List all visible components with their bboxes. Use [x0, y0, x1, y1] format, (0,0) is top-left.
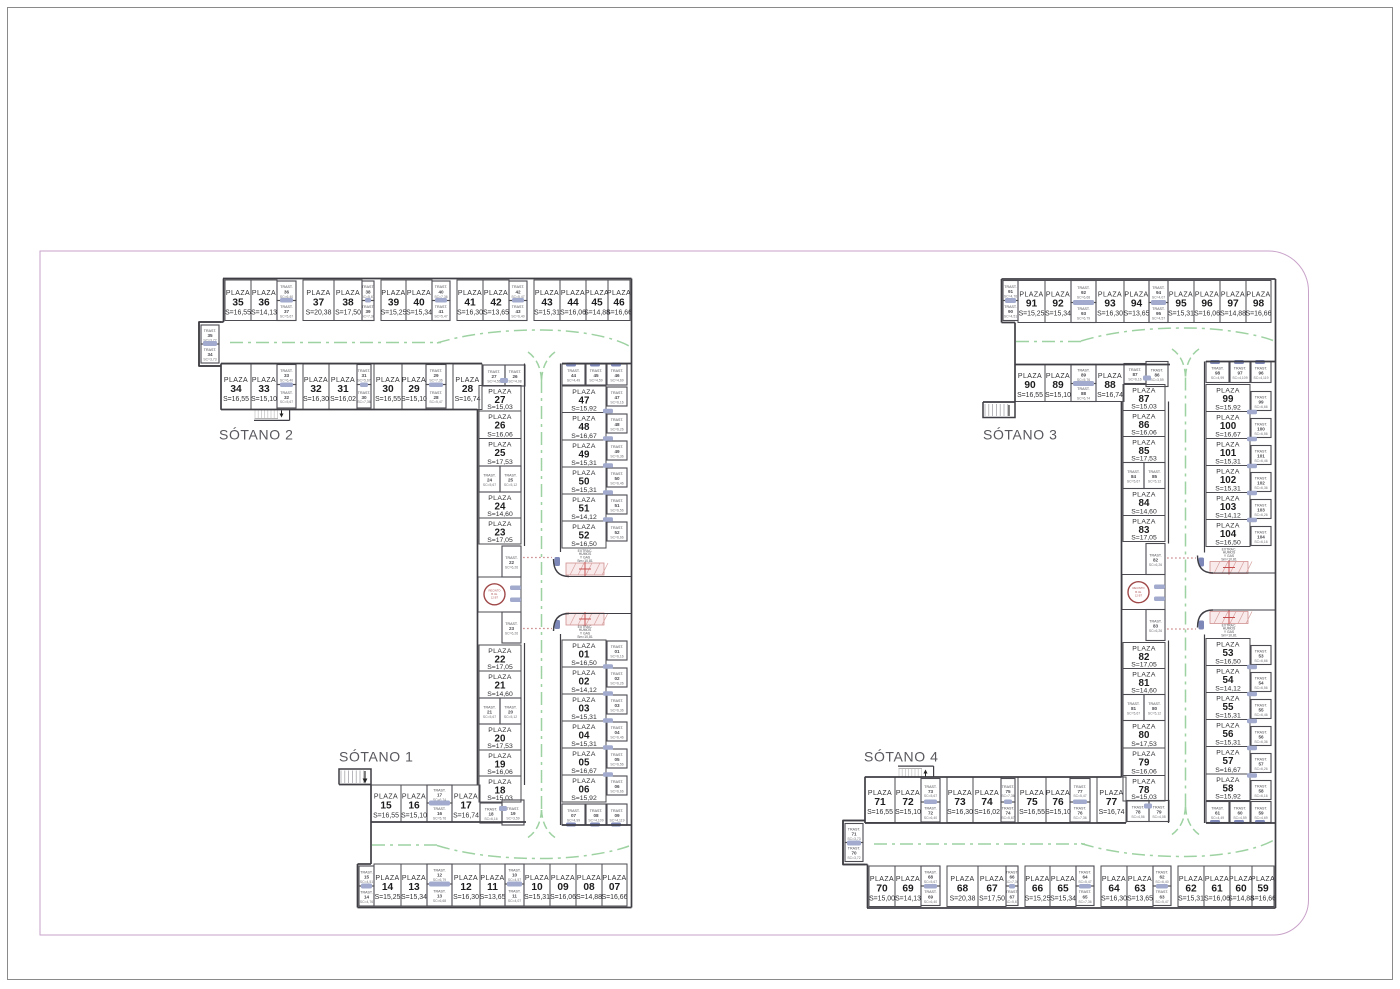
svg-text:S=16,50: S=16,50 [571, 541, 597, 548]
svg-text:PLAZA: PLAZA [1102, 876, 1126, 883]
svg-text:PLAZA: PLAZA [577, 875, 601, 882]
svg-text:65: 65 [1082, 894, 1088, 899]
svg-text:SC=5,67: SC=5,67 [924, 880, 937, 884]
svg-text:39: 39 [365, 309, 371, 314]
svg-text:49: 49 [579, 449, 590, 460]
svg-text:94: 94 [1156, 290, 1162, 295]
svg-text:75: 75 [1005, 789, 1011, 794]
svg-text:70: 70 [876, 884, 888, 895]
svg-text:65: 65 [1057, 884, 1069, 895]
svg-text:09: 09 [614, 813, 620, 818]
svg-text:11: 11 [487, 882, 498, 893]
svg-text:S=15,31: S=15,31 [1215, 459, 1241, 466]
svg-text:98: 98 [1253, 299, 1265, 310]
svg-text:PLAZA: PLAZA [226, 290, 250, 297]
svg-text:17: 17 [437, 793, 443, 798]
svg-text:PLAZA: PLAZA [1128, 876, 1152, 883]
svg-text:26: 26 [512, 374, 518, 379]
svg-text:SC=6,16: SC=6,16 [610, 655, 623, 659]
svg-text:96: 96 [1258, 371, 1264, 376]
svg-text:12: 12 [437, 873, 443, 878]
svg-text:76: 76 [1052, 797, 1064, 808]
svg-text:80: 80 [1139, 730, 1150, 741]
svg-text:S=16,55: S=16,55 [375, 396, 401, 403]
svg-text:28: 28 [433, 395, 439, 400]
svg-text:S=15,31: S=15,31 [1178, 896, 1204, 903]
svg-text:79: 79 [1156, 810, 1162, 815]
svg-text:S=15,00: S=15,00 [869, 896, 895, 903]
svg-text:81: 81 [1131, 706, 1137, 711]
svg-text:77: 77 [1106, 797, 1118, 808]
svg-text:PLAZA: PLAZA [252, 290, 276, 297]
svg-text:S=17,50: S=17,50 [335, 309, 361, 316]
svg-text:69: 69 [902, 884, 914, 895]
svg-text:06: 06 [579, 784, 590, 795]
svg-text:SC=4,56: SC=4,56 [487, 380, 500, 384]
svg-text:24: 24 [487, 478, 493, 483]
svg-text:12 BT: 12 BT [1135, 593, 1143, 597]
svg-text:39: 39 [388, 297, 400, 308]
svg-text:63: 63 [1134, 884, 1146, 895]
svg-text:S=17,05: S=17,05 [1131, 535, 1157, 542]
svg-text:S=14,13: S=14,13 [895, 896, 921, 903]
svg-text:05: 05 [614, 757, 620, 762]
svg-text:S=16,06: S=16,06 [1194, 311, 1220, 318]
svg-text:62: 62 [1185, 884, 1197, 895]
svg-text:10: 10 [512, 873, 518, 878]
svg-text:30: 30 [361, 395, 367, 400]
svg-text:61: 61 [1211, 884, 1223, 895]
svg-text:28: 28 [462, 384, 474, 395]
svg-text:PLAZA: PLAZA [252, 377, 276, 384]
svg-text:SC=5,67: SC=5,67 [483, 483, 496, 487]
svg-text:17: 17 [460, 801, 472, 812]
svg-text:S=17,53: S=17,53 [1131, 456, 1157, 463]
svg-text:16: 16 [408, 801, 420, 812]
svg-text:PLAZA: PLAZA [402, 794, 426, 801]
svg-text:SC=4,76: SC=4,76 [360, 900, 373, 904]
svg-text:S=16,55: S=16,55 [1017, 392, 1043, 399]
svg-text:07: 07 [609, 882, 621, 893]
svg-text:38: 38 [365, 289, 371, 294]
svg-text:34: 34 [207, 352, 213, 357]
svg-text:32: 32 [310, 384, 322, 395]
svg-text:SC=6,36: SC=6,36 [1254, 740, 1267, 744]
svg-text:PLAZA: PLAZA [535, 290, 559, 297]
svg-text:88: 88 [1081, 391, 1087, 396]
svg-text:SC=6,36: SC=6,36 [1254, 486, 1267, 490]
svg-text:SC=6,56: SC=6,56 [1254, 686, 1267, 690]
svg-text:23: 23 [509, 626, 515, 631]
svg-text:PLAZA: PLAZA [1251, 876, 1275, 883]
svg-text:33: 33 [258, 384, 270, 395]
svg-text:SC=4,51: SC=4,51 [1004, 315, 1017, 319]
svg-text:51: 51 [614, 503, 620, 508]
svg-text:PLAZA: PLAZA [1019, 292, 1043, 299]
svg-text:SC=6,79: SC=6,79 [433, 878, 446, 882]
svg-text:SC=4,119: SC=4,119 [1254, 376, 1269, 380]
svg-text:SC=4,07: SC=4,07 [1152, 296, 1165, 300]
svg-text:PLAZA: PLAZA [336, 290, 360, 297]
svg-text:Sm=10,81: Sm=10,81 [1221, 558, 1237, 562]
svg-text:95: 95 [1156, 311, 1162, 316]
svg-text:SC=6,36: SC=6,36 [610, 709, 623, 713]
svg-text:S=15,31: S=15,31 [571, 741, 597, 748]
svg-text:60: 60 [1237, 811, 1243, 816]
svg-text:SC=5,47: SC=5,47 [434, 315, 447, 319]
svg-text:SC=4,49: SC=4,49 [567, 379, 580, 383]
svg-text:SC=7,36: SC=7,36 [357, 400, 370, 404]
svg-text:SC=5,67: SC=5,67 [1001, 816, 1014, 820]
svg-text:90: 90 [1008, 309, 1014, 314]
svg-text:SC=3,59: SC=3,59 [506, 817, 519, 821]
svg-text:16: 16 [437, 811, 443, 816]
svg-text:PLAZA: PLAZA [1051, 876, 1075, 883]
svg-text:PLAZA: PLAZA [455, 377, 479, 384]
svg-text:36: 36 [284, 289, 290, 294]
svg-text:03: 03 [614, 703, 620, 708]
svg-text:06: 06 [614, 784, 620, 789]
svg-text:56: 56 [1223, 729, 1234, 740]
svg-text:SC=7,36: SC=7,36 [1078, 900, 1091, 904]
svg-text:29: 29 [408, 384, 420, 395]
svg-text:S=15,92: S=15,92 [1215, 405, 1241, 412]
svg-text:PLAZA: PLAZA [376, 377, 400, 384]
svg-text:40: 40 [438, 289, 444, 294]
svg-text:S=16,66: S=16,66 [602, 894, 628, 901]
svg-text:101: 101 [1257, 454, 1265, 459]
svg-text:SC=4,76: SC=4,76 [1004, 295, 1017, 299]
svg-text:S=15,03: S=15,03 [1131, 404, 1157, 411]
svg-text:PLAZA: PLAZA [1099, 790, 1123, 797]
svg-text:S=16,30: S=16,30 [947, 809, 973, 816]
svg-text:29: 29 [433, 373, 439, 378]
svg-text:41: 41 [464, 297, 476, 308]
svg-text:50: 50 [614, 476, 620, 481]
svg-text:SC=6,16: SC=6,16 [1254, 794, 1267, 798]
svg-text:07: 07 [571, 813, 577, 818]
svg-text:PLAZA: PLAZA [407, 290, 431, 297]
svg-text:19: 19 [510, 811, 516, 816]
svg-text:S=13,65: S=13,65 [483, 309, 509, 316]
svg-text:31: 31 [337, 384, 349, 395]
svg-text:15: 15 [380, 801, 392, 812]
svg-text:93: 93 [1081, 311, 1087, 316]
svg-text:69: 69 [928, 894, 934, 899]
svg-text:SC=6,46: SC=6,46 [610, 736, 623, 740]
svg-text:S=15,25: S=15,25 [375, 894, 401, 901]
svg-text:89: 89 [1081, 373, 1087, 378]
svg-text:71: 71 [851, 832, 857, 837]
svg-text:42: 42 [515, 289, 521, 294]
svg-text:SC=3,73: SC=3,73 [847, 837, 860, 841]
svg-text:42: 42 [490, 297, 502, 308]
svg-text:57: 57 [1223, 756, 1234, 767]
svg-text:04: 04 [579, 730, 590, 741]
svg-text:S=16,50: S=16,50 [571, 660, 597, 667]
svg-text:S=13,65: S=13,65 [480, 894, 506, 901]
svg-text:SC=6,26: SC=6,26 [505, 632, 518, 636]
svg-text:SC=5,67: SC=5,67 [280, 315, 293, 319]
svg-text:S=16,30: S=16,30 [303, 396, 329, 403]
svg-text:SC=4,57: SC=4,57 [1152, 317, 1165, 321]
svg-text:43: 43 [541, 297, 553, 308]
svg-text:PLAZA: PLAZA [1098, 373, 1122, 380]
svg-text:S=16,74: S=16,74 [455, 396, 481, 403]
svg-text:91: 91 [1008, 289, 1014, 294]
svg-text:48: 48 [579, 422, 590, 433]
svg-text:67: 67 [1009, 894, 1015, 899]
svg-text:S=20,38: S=20,38 [306, 309, 332, 316]
svg-text:S=14,12: S=14,12 [571, 687, 597, 694]
svg-text:SC=4,08: SC=4,08 [508, 380, 521, 384]
svg-text:SC=6,66: SC=6,66 [610, 536, 623, 540]
svg-text:PLAZA: PLAZA [896, 876, 920, 883]
svg-text:S=15,92: S=15,92 [571, 795, 597, 802]
svg-text:104: 104 [1257, 535, 1265, 540]
svg-text:PLAZA: PLAZA [454, 875, 478, 882]
svg-text:PLAZA: PLAZA [1098, 292, 1122, 299]
svg-text:64: 64 [1108, 884, 1120, 895]
svg-text:Sm=10,81: Sm=10,81 [577, 559, 593, 563]
svg-text:S=17,50: S=17,50 [979, 896, 1005, 903]
svg-text:02: 02 [579, 676, 590, 687]
svg-text:92: 92 [1052, 299, 1064, 310]
svg-text:33: 33 [284, 373, 290, 378]
svg-text:SC=7,36: SC=7,36 [1073, 816, 1086, 820]
svg-text:Sm=10,81: Sm=10,81 [1221, 634, 1237, 638]
svg-text:PLAZA: PLAZA [224, 377, 248, 384]
svg-text:SC=6,26: SC=6,26 [610, 428, 623, 432]
svg-text:S=15,31: S=15,31 [1215, 713, 1241, 720]
svg-text:PLAZA: PLAZA [975, 790, 999, 797]
svg-text:PLAZA: PLAZA [950, 876, 974, 883]
svg-text:51: 51 [579, 503, 590, 514]
svg-text:SC=4,119: SC=4,119 [610, 819, 625, 823]
svg-text:09: 09 [557, 882, 569, 893]
svg-text:SC=6,40: SC=6,40 [280, 379, 293, 383]
svg-text:S=16,67: S=16,67 [1215, 432, 1241, 439]
svg-text:58: 58 [1258, 789, 1264, 794]
svg-text:SC=5,67: SC=5,67 [357, 379, 370, 383]
svg-text:SC=3,59: SC=3,59 [1150, 378, 1163, 382]
svg-text:PLAZA: PLAZA [1124, 292, 1148, 299]
svg-text:SC=5,12: SC=5,12 [1148, 712, 1161, 716]
svg-text:35: 35 [232, 297, 244, 308]
svg-text:18: 18 [488, 812, 494, 817]
svg-text:S=15,10: S=15,10 [1045, 392, 1071, 399]
svg-text:S=15,31: S=15,31 [534, 309, 560, 316]
svg-text:47: 47 [614, 395, 620, 400]
svg-text:PLAZA: PLAZA [602, 875, 626, 882]
svg-text:35: 35 [207, 333, 213, 338]
svg-text:27: 27 [491, 374, 497, 379]
svg-text:S=17,05: S=17,05 [1131, 662, 1157, 669]
svg-text:S=14,60: S=14,60 [487, 691, 513, 698]
svg-text:SC=4,109: SC=4,109 [588, 819, 603, 823]
svg-text:57: 57 [1258, 762, 1264, 767]
svg-text:45: 45 [593, 373, 599, 378]
svg-text:PLAZA: PLAZA [561, 290, 585, 297]
svg-text:SC=7,36: SC=7,36 [361, 315, 374, 319]
svg-text:89: 89 [1052, 380, 1064, 391]
svg-text:SC=4,69: SC=4,69 [1254, 816, 1267, 820]
svg-text:S=14,12: S=14,12 [1215, 513, 1241, 520]
svg-text:S=16,74: S=16,74 [453, 813, 479, 820]
svg-text:66: 66 [1032, 884, 1044, 895]
svg-text:52: 52 [614, 530, 620, 535]
svg-text:72: 72 [928, 811, 934, 816]
svg-text:S=15,25: S=15,25 [1025, 896, 1051, 903]
svg-text:25: 25 [508, 478, 514, 483]
svg-text:S=16,55: S=16,55 [225, 309, 251, 316]
svg-text:S=20,38: S=20,38 [950, 896, 976, 903]
svg-text:SC=5,76: SC=5,76 [433, 817, 446, 821]
svg-text:PLAZA: PLAZA [896, 790, 920, 797]
svg-text:SC=7,36: SC=7,36 [1005, 880, 1018, 884]
svg-text:SC=6,16: SC=6,16 [1254, 540, 1267, 544]
svg-text:SC=6,46: SC=6,46 [1254, 713, 1267, 717]
svg-text:04: 04 [614, 730, 620, 735]
svg-text:95: 95 [1175, 299, 1187, 310]
svg-text:S=14,60: S=14,60 [1131, 688, 1157, 695]
svg-text:S=16,06: S=16,06 [1131, 430, 1157, 437]
svg-text:SC=5,12: SC=5,12 [504, 483, 517, 487]
svg-text:S=16,06: S=16,06 [487, 769, 513, 776]
svg-text:PLAZA: PLAZA [454, 794, 478, 801]
svg-text:21: 21 [487, 710, 493, 715]
svg-text:S=15,31: S=15,31 [1168, 311, 1194, 318]
svg-text:21: 21 [495, 680, 506, 691]
svg-text:74: 74 [1005, 811, 1011, 816]
svg-text:PLAZA: PLAZA [381, 290, 405, 297]
svg-text:SC=5,67: SC=5,67 [924, 794, 937, 798]
svg-text:SC=6,40: SC=6,40 [924, 900, 937, 904]
svg-text:102: 102 [1220, 475, 1237, 486]
svg-text:85: 85 [1152, 474, 1158, 479]
svg-text:S=16,50: S=16,50 [1215, 540, 1241, 547]
svg-text:S=16,06: S=16,06 [487, 432, 513, 439]
svg-text:79: 79 [1139, 757, 1150, 768]
svg-text:SC=5,12: SC=5,12 [1148, 480, 1161, 484]
svg-text:99: 99 [1223, 394, 1234, 405]
svg-text:103: 103 [1257, 508, 1265, 513]
svg-text:PLAZA: PLAZA [1025, 876, 1049, 883]
svg-text:S=15,03: S=15,03 [1131, 794, 1157, 801]
svg-text:PLAZA: PLAZA [525, 875, 549, 882]
svg-text:S=14,60: S=14,60 [1131, 509, 1157, 516]
svg-text:44: 44 [567, 297, 579, 308]
svg-text:PLAZA: PLAZA [402, 875, 426, 882]
svg-text:97: 97 [1237, 371, 1243, 376]
svg-text:PLAZA: PLAZA [551, 875, 575, 882]
svg-text:86: 86 [1154, 373, 1160, 378]
svg-text:30: 30 [382, 384, 394, 395]
svg-text:SC=4,99: SC=4,99 [1211, 376, 1224, 380]
svg-text:SC=5,67: SC=5,67 [1127, 480, 1140, 484]
svg-text:43: 43 [515, 309, 521, 314]
svg-text:13: 13 [437, 894, 443, 899]
svg-text:SC=3,73: SC=3,73 [203, 358, 216, 362]
svg-text:PLAZA: PLAZA [607, 290, 631, 297]
svg-text:SC=6,16: SC=6,16 [1128, 378, 1141, 382]
svg-text:75: 75 [1026, 797, 1038, 808]
svg-text:S=16,67: S=16,67 [1215, 767, 1241, 774]
svg-text:S=15,31: S=15,31 [571, 487, 597, 494]
svg-text:S=15,92: S=15,92 [571, 406, 597, 413]
svg-text:S=16,06: S=16,06 [550, 894, 576, 901]
svg-text:RECINTO: RECINTO [488, 588, 500, 592]
svg-text:B.I.E.: B.I.E. [491, 592, 498, 596]
svg-text:S=17,53: S=17,53 [487, 743, 513, 750]
svg-text:S=15,03: S=15,03 [487, 795, 513, 802]
svg-text:SC=4,56: SC=4,56 [1131, 815, 1144, 819]
svg-text:53: 53 [1258, 654, 1264, 659]
svg-text:PLAZA: PLAZA [374, 794, 398, 801]
svg-text:SC=5,67: SC=5,67 [483, 715, 496, 719]
svg-text:92: 92 [1081, 290, 1087, 295]
svg-text:S=16,66: S=16,66 [1250, 896, 1276, 903]
svg-text:PLAZA: PLAZA [1169, 292, 1193, 299]
svg-text:SC=6,68: SC=6,68 [1077, 296, 1090, 300]
svg-text:SC=4,51: SC=4,51 [360, 880, 373, 884]
svg-text:SC=5,67: SC=5,67 [1005, 900, 1018, 904]
svg-text:S=16,66: S=16,66 [606, 309, 632, 316]
svg-text:60: 60 [1235, 884, 1247, 895]
svg-text:PLAZA: PLAZA [868, 790, 892, 797]
svg-text:68: 68 [957, 884, 969, 895]
svg-text:02: 02 [614, 676, 620, 681]
svg-text:SC=6,26: SC=6,26 [610, 682, 623, 686]
svg-text:55: 55 [1258, 708, 1264, 713]
svg-text:46: 46 [613, 297, 625, 308]
svg-text:S=16,67: S=16,67 [571, 768, 597, 775]
svg-text:05: 05 [579, 757, 590, 768]
svg-text:SC=4,109: SC=4,109 [1232, 376, 1247, 380]
svg-text:Sm=10,81: Sm=10,81 [577, 635, 593, 639]
svg-text:S=14,88: S=14,88 [576, 894, 602, 901]
svg-text:SC=3,72: SC=3,72 [847, 856, 860, 860]
svg-text:100: 100 [1220, 421, 1237, 432]
svg-text:14: 14 [382, 882, 394, 893]
svg-text:S=16,50: S=16,50 [1215, 659, 1241, 666]
svg-text:S=16,06: S=16,06 [1131, 769, 1157, 776]
svg-text:PLAZA: PLAZA [402, 377, 426, 384]
svg-text:99: 99 [1258, 400, 1264, 405]
svg-text:44: 44 [571, 373, 577, 378]
svg-text:PLAZA: PLAZA [480, 875, 504, 882]
svg-text:PLAZA: PLAZA [1221, 292, 1245, 299]
svg-text:SC=5,47: SC=5,47 [429, 400, 442, 404]
svg-text:88: 88 [1104, 380, 1116, 391]
svg-text:15: 15 [364, 875, 370, 880]
svg-text:SC=5,47: SC=5,47 [1078, 880, 1091, 884]
svg-text:70: 70 [851, 851, 857, 856]
svg-text:10: 10 [531, 882, 543, 893]
svg-text:SC=6,66: SC=6,66 [610, 790, 623, 794]
svg-text:PLAZA: PLAZA [1046, 373, 1070, 380]
svg-text:08: 08 [593, 813, 599, 818]
svg-text:S=16,67: S=16,67 [571, 433, 597, 440]
svg-text:94: 94 [1131, 299, 1143, 310]
svg-text:52: 52 [579, 530, 590, 541]
svg-text:S=16,06: S=16,06 [560, 309, 586, 316]
svg-text:50: 50 [579, 476, 590, 487]
svg-text:S=15,92: S=15,92 [1215, 794, 1241, 801]
svg-text:98: 98 [1215, 371, 1221, 376]
svg-text:SC=4,08: SC=4,08 [1152, 815, 1165, 819]
svg-text:22: 22 [509, 560, 515, 565]
